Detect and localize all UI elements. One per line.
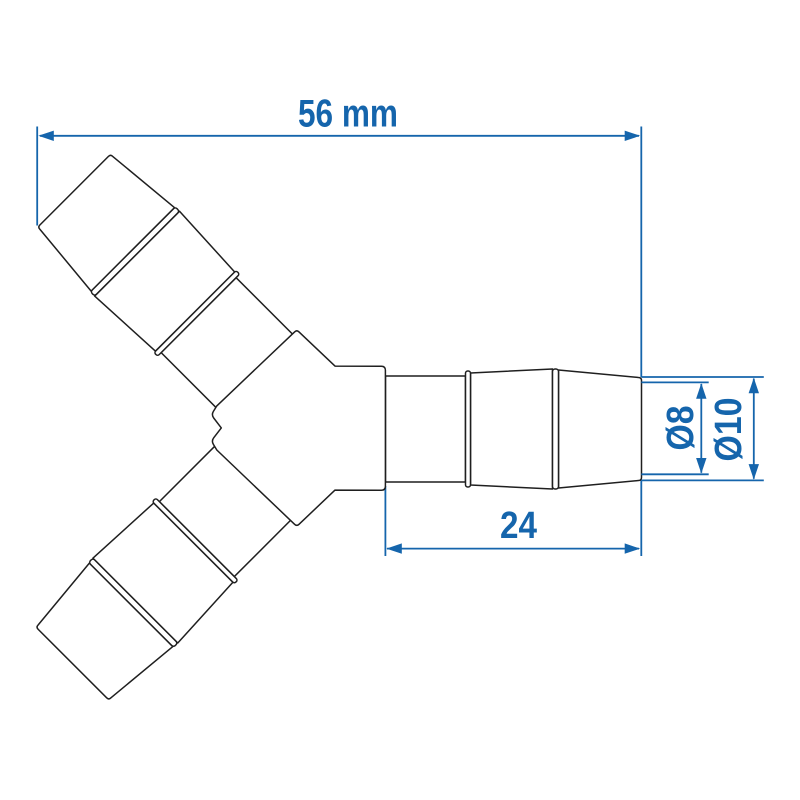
svg-text:24: 24 bbox=[500, 505, 537, 547]
svg-text:Ø8: Ø8 bbox=[660, 406, 702, 451]
svg-text:Ø10: Ø10 bbox=[708, 398, 750, 462]
svg-text:56 mm: 56 mm bbox=[298, 93, 398, 136]
